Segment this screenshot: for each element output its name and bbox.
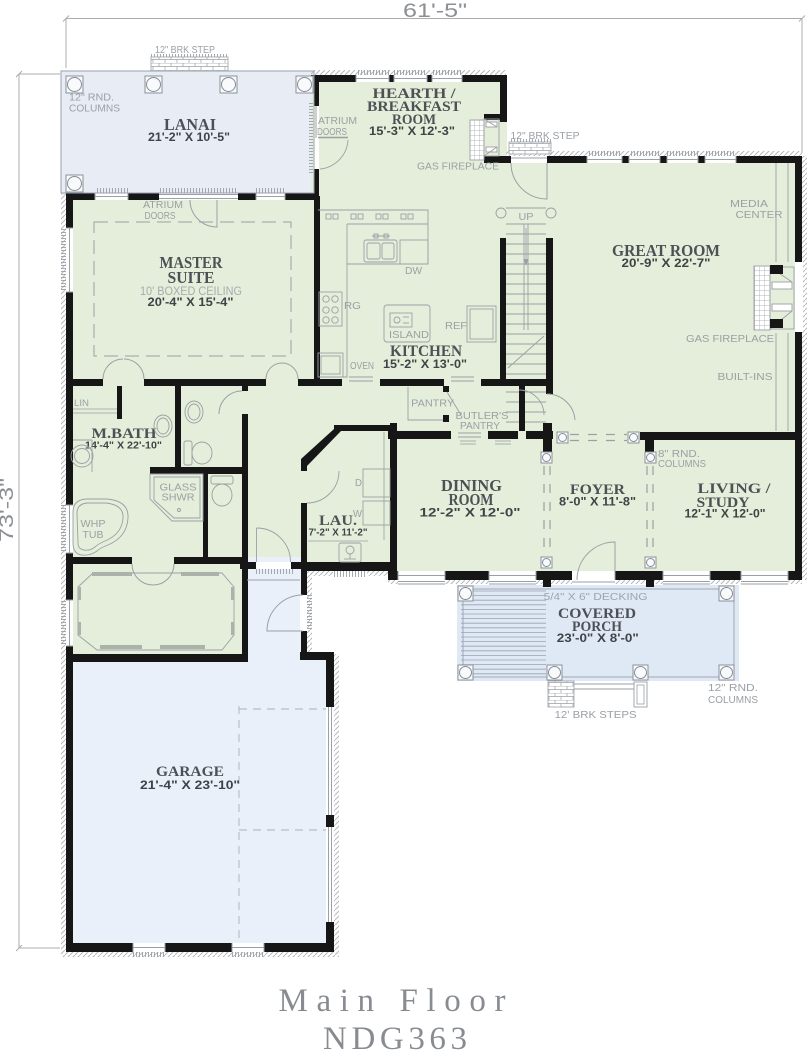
- svg-text:12'-1" X 12'-0": 12'-1" X 12'-0": [685, 509, 766, 521]
- svg-text:UP: UP: [519, 211, 534, 223]
- svg-text:21'-4" X 23'-10": 21'-4" X 23'-10": [140, 780, 240, 792]
- svg-text:CENTER: CENTER: [736, 210, 783, 221]
- svg-text:RG: RG: [344, 301, 361, 312]
- svg-text:GAS FIREPLACE: GAS FIREPLACE: [686, 334, 774, 345]
- svg-text:PANTRY: PANTRY: [411, 399, 454, 410]
- svg-text:GAS FIREPLACE: GAS FIREPLACE: [417, 162, 499, 173]
- svg-text:20'-9" X 22'-7": 20'-9" X 22'-7": [622, 258, 711, 270]
- svg-text:DOORS: DOORS: [317, 127, 347, 138]
- svg-text:SUITE: SUITE: [168, 268, 215, 287]
- svg-text:BUILT-INS: BUILT-INS: [718, 372, 773, 383]
- svg-text:PANTRY: PANTRY: [460, 421, 500, 432]
- svg-text:REF: REF: [445, 321, 467, 332]
- svg-text:MEDIA: MEDIA: [730, 199, 768, 210]
- svg-text:COLUMNS: COLUMNS: [708, 694, 758, 706]
- svg-text:8'-0" X 11'-8": 8'-0" X 11'-8": [559, 497, 636, 509]
- svg-text:SHWR: SHWR: [162, 493, 195, 504]
- svg-text:7'-2" X 11'-2": 7'-2" X 11'-2": [309, 527, 368, 539]
- svg-text:ATRIUM: ATRIUM: [318, 116, 357, 127]
- svg-text:12'-2" X 12'-0": 12'-2" X 12'-0": [420, 506, 521, 520]
- svg-text:12" RND.: 12" RND.: [708, 682, 758, 694]
- svg-text:COLUMNS: COLUMNS: [69, 103, 120, 115]
- svg-text:12" BRK STEP: 12" BRK STEP: [155, 45, 215, 56]
- svg-text:21'-2" X 10'-5": 21'-2" X 10'-5": [148, 130, 230, 144]
- svg-text:D: D: [355, 478, 362, 489]
- svg-text:OVEN: OVEN: [350, 361, 374, 372]
- svg-text:COLUMNS: COLUMNS: [658, 459, 706, 470]
- svg-text:73'-3": 73'-3": [0, 478, 18, 542]
- svg-text:15'-3" X 12'-3": 15'-3" X 12'-3": [369, 126, 455, 138]
- svg-text:ISLAND: ISLAND: [389, 330, 429, 341]
- svg-text:15'-2" X 13'-0": 15'-2" X 13'-0": [383, 359, 467, 371]
- svg-text:GARAGE: GARAGE: [156, 764, 224, 780]
- svg-text:WHP: WHP: [81, 519, 106, 530]
- svg-text:TUB: TUB: [83, 530, 104, 541]
- svg-text:23'-0" X 8'-0": 23'-0" X 8'-0": [557, 631, 639, 645]
- svg-text:12" BRK STEP: 12" BRK STEP: [511, 131, 580, 142]
- svg-text:5/4" X 6" DECKING: 5/4" X 6" DECKING: [544, 591, 648, 603]
- svg-text:NDG363: NDG363: [323, 1021, 467, 1052]
- svg-text:DOORS: DOORS: [145, 211, 176, 222]
- svg-text:12' BRK STEPS: 12' BRK STEPS: [555, 709, 637, 721]
- svg-text:20'-4" X 15'-4": 20'-4" X 15'-4": [148, 295, 234, 309]
- svg-text:DW: DW: [405, 266, 423, 277]
- svg-text:LIN: LIN: [74, 398, 89, 409]
- svg-text:ATRIUM: ATRIUM: [143, 200, 183, 211]
- svg-text:14'-4" X 22'-10": 14'-4" X 22'-10": [85, 440, 162, 452]
- svg-text:KITCHEN: KITCHEN: [390, 343, 462, 360]
